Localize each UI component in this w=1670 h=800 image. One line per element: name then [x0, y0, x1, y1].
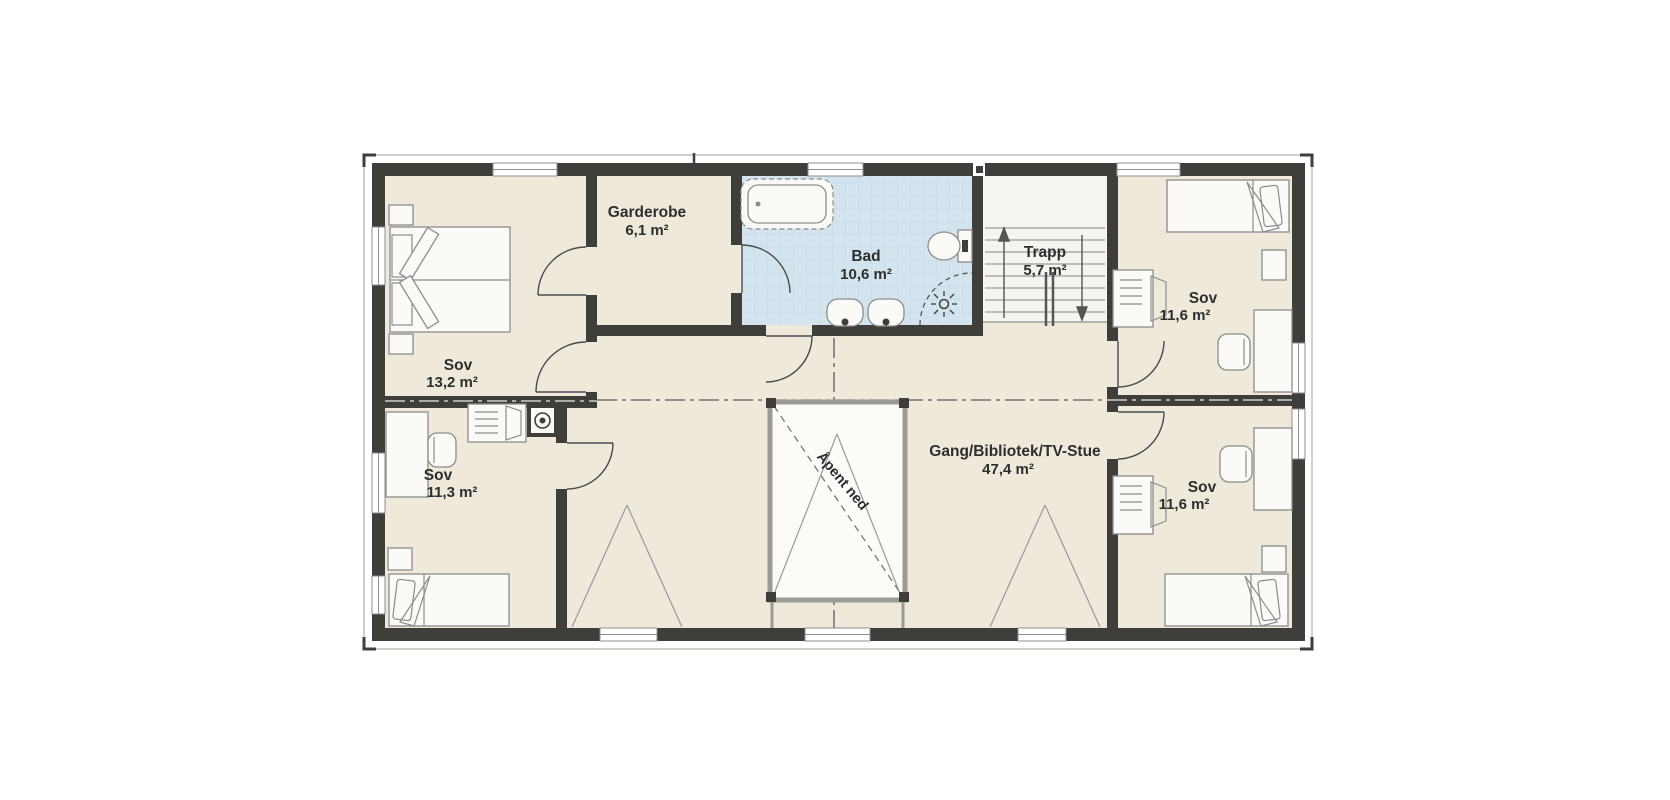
bathtub [741, 179, 833, 229]
single-bed [1167, 180, 1289, 232]
stair-opening [766, 398, 909, 628]
single-bed [389, 574, 509, 626]
floor-plan-drawing: Sov 13,2 m² Garderobe 6,1 m² Bad 10,6 m²… [0, 0, 1670, 800]
nightstand [389, 205, 413, 225]
chair [1220, 446, 1252, 482]
room-label-name: Bad [851, 248, 880, 265]
nightstand [388, 548, 412, 570]
nightstand [1262, 250, 1286, 280]
room-label-area: 11,6 m² [1160, 307, 1211, 324]
chair [428, 433, 456, 467]
room-label-name: Trapp [1024, 244, 1066, 261]
room-label-name: Sov [424, 467, 453, 484]
wardrobe [468, 404, 526, 442]
double-bed [390, 227, 510, 332]
room-label-name: Gang/Bibliotek/TV-Stue [929, 443, 1101, 460]
desk [1254, 428, 1292, 510]
floor-plan-page: Sov 13,2 m² Garderobe 6,1 m² Bad 10,6 m²… [0, 0, 1670, 800]
chair [1218, 334, 1250, 370]
sov-master-furniture [389, 205, 510, 354]
room-label-name: Sov [444, 357, 473, 374]
room-label-name: Sov [1189, 290, 1218, 307]
wall-junction-post [976, 166, 983, 173]
room-label-area: 13,2 m² [426, 374, 478, 391]
room-label-area: 47,4 m² [982, 461, 1034, 478]
room-label-name: Sov [1188, 479, 1217, 496]
room-label-area: 10,6 m² [840, 266, 892, 283]
single-bed [1165, 574, 1288, 626]
room-label-area: 11,6 m² [1159, 496, 1210, 513]
room-label-area: 6,1 m² [625, 222, 668, 239]
room-label-area: 5,7 m² [1023, 262, 1066, 279]
toilet [928, 230, 972, 262]
desk [1254, 310, 1292, 392]
chimney [527, 404, 558, 437]
room-label-name: Garderobe [608, 204, 687, 221]
desk [386, 412, 428, 497]
nightstand [1262, 546, 1286, 572]
room-label-area: 11,3 m² [427, 484, 478, 501]
nightstand [389, 334, 413, 354]
